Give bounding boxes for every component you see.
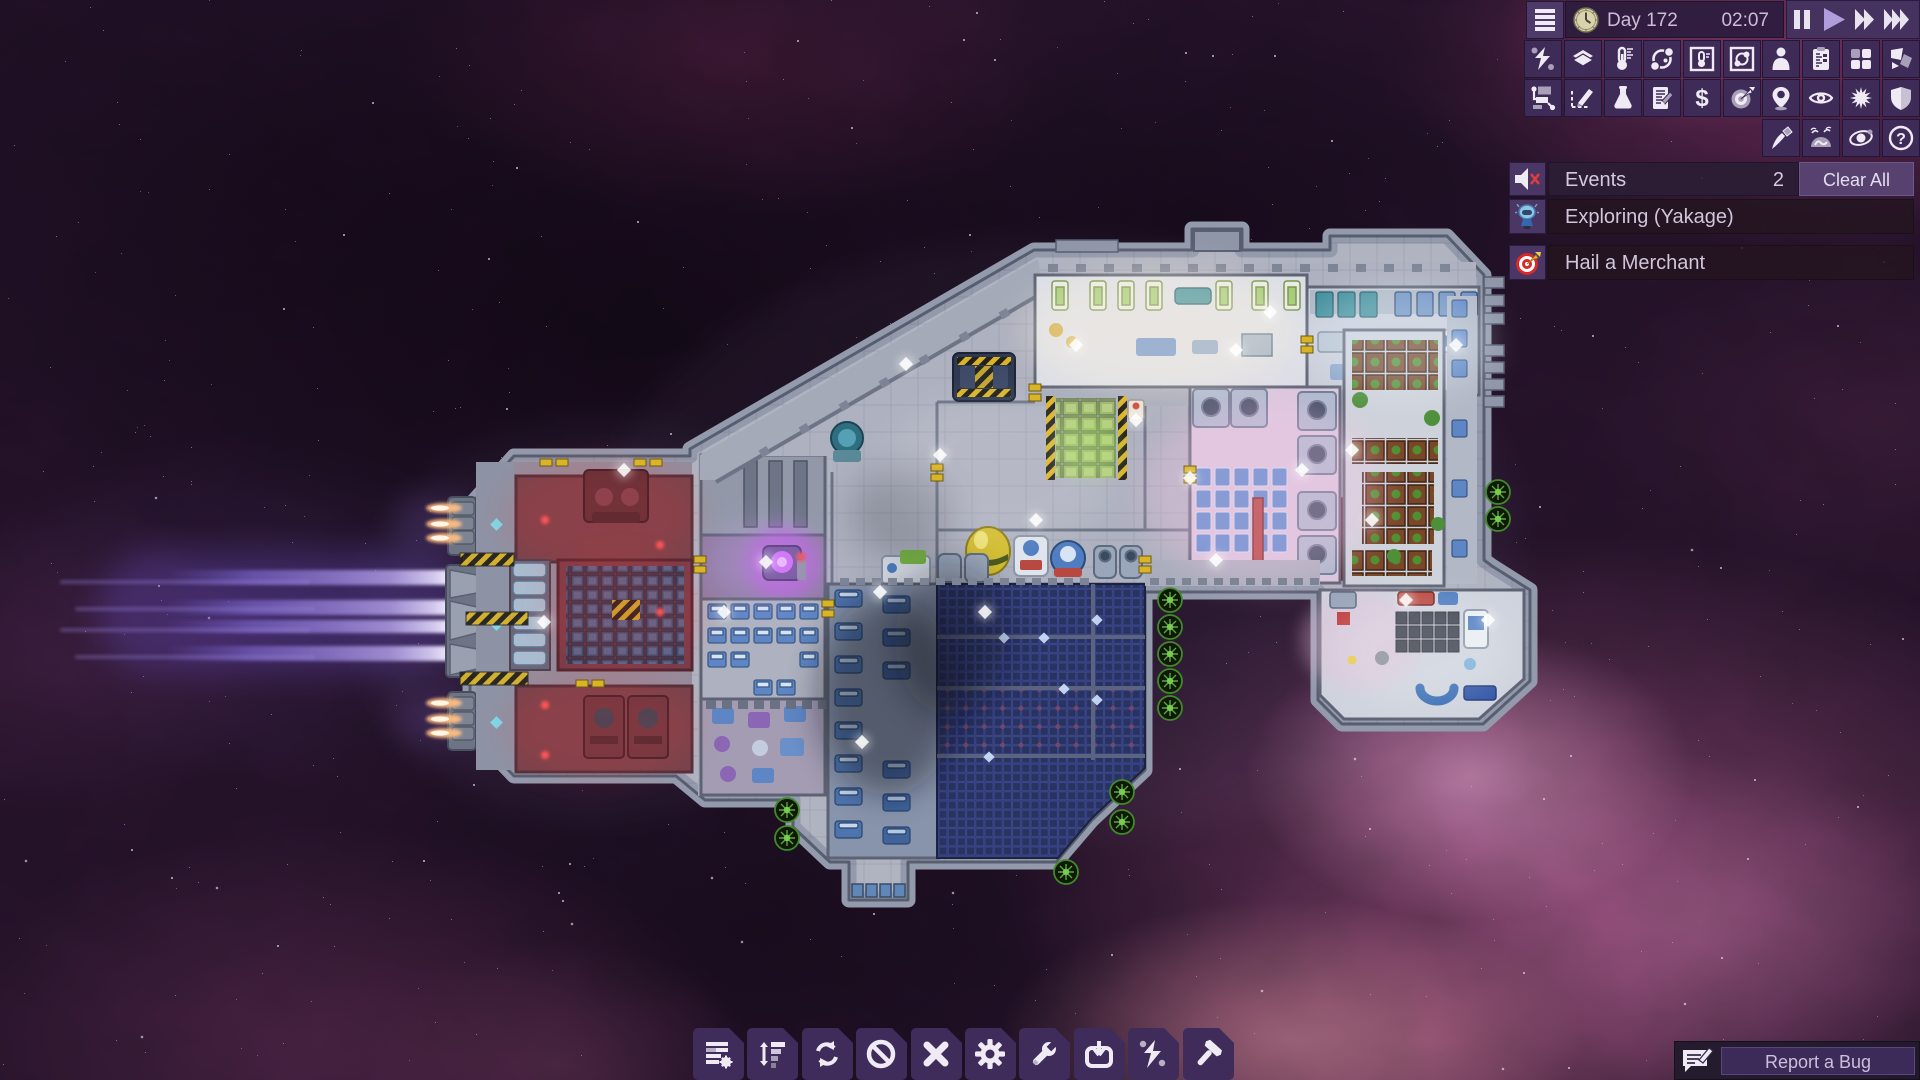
svg-text:$: $: [1695, 85, 1709, 111]
svg-text:?: ?: [1896, 131, 1906, 148]
